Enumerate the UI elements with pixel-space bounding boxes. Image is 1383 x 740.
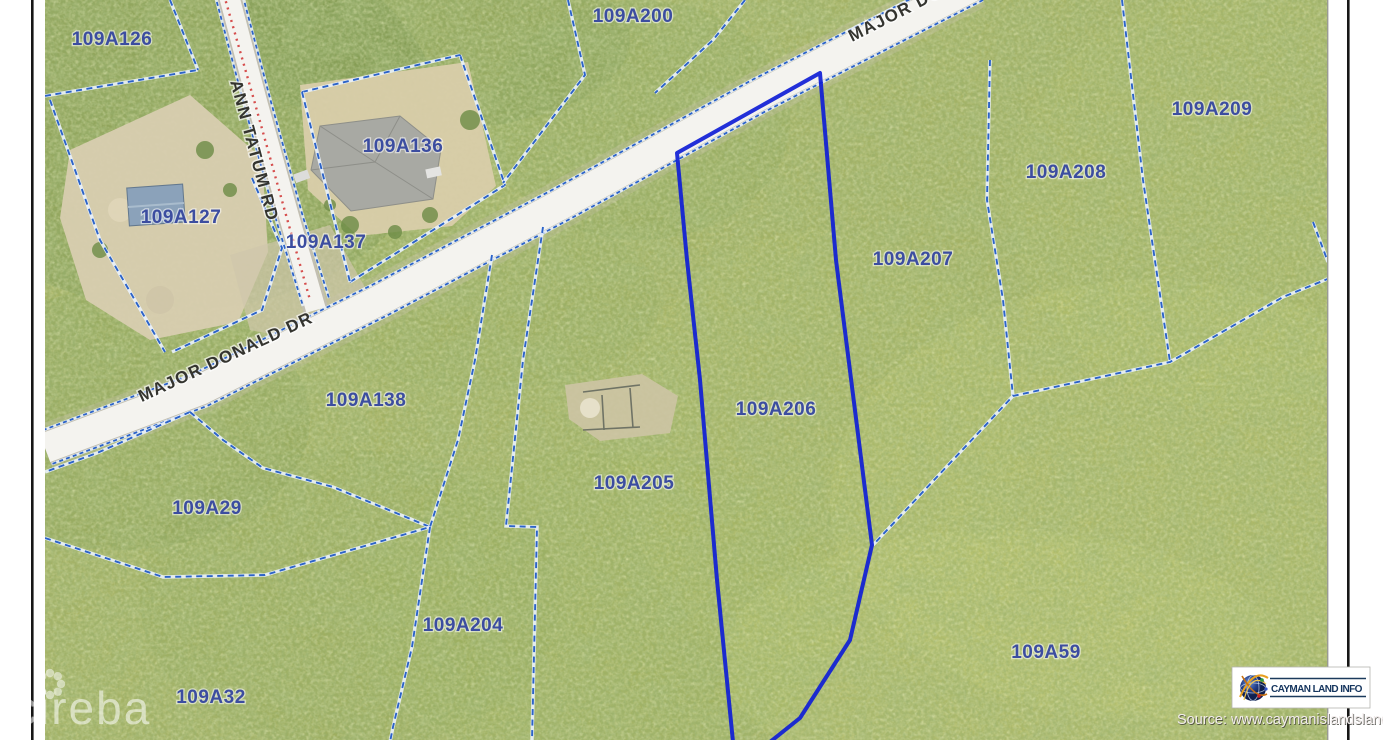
pinwheel-petal [38,672,46,680]
cayman-land-info-logo: CAYMAN LAND INFO [1232,667,1370,708]
map-viewport: MAJOR DONALD DRANN TATUM RDMAJOR DONALD … [0,0,1383,740]
parcel-label-109A209: 109A209 [1172,99,1253,120]
parcel-label-109A204: 109A204 [423,615,504,636]
parcel-label-109A126: 109A126 [72,29,153,50]
parcel-label-109A206: 109A206 [736,399,817,420]
parcel-label-109A136: 109A136 [363,136,444,157]
logo-text: CAYMAN LAND INFO [1271,684,1364,695]
source-note-text: Source: www.caymanislandsland [1177,712,1383,728]
parcel-label-109A137: 109A137 [286,232,367,253]
parcel-label-109A138: 109A138 [326,390,407,411]
source-note: Source: www.caymanislandsland Source: ww… [1177,712,1383,729]
pinwheel-petal [54,672,62,680]
parcel-label-109A205: 109A205 [594,473,675,494]
pinwheel-petal [46,669,54,677]
watermark-text: cireba [14,682,151,734]
parcel-label-109A32: 109A32 [176,687,246,708]
parcel-label-109A208: 109A208 [1026,162,1107,183]
parcel-label-109A127: 109A127 [141,207,222,228]
parcel-label-109A29: 109A29 [172,498,242,519]
parcel-label-109A207: 109A207 [873,249,954,270]
parcel-label-109A200: 109A200 [593,6,674,27]
aerial-map-canvas[interactable]: MAJOR DONALD DRANN TATUM RDMAJOR DONALD … [0,0,1383,740]
parcel-label-109A59: 109A59 [1011,642,1081,663]
